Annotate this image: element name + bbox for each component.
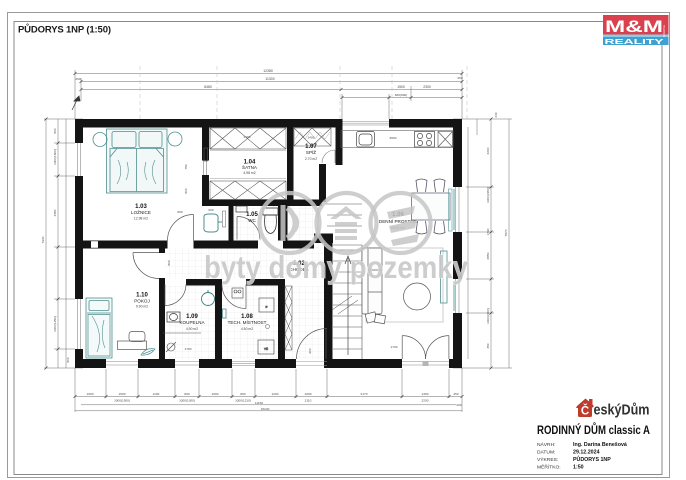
svg-text:450: 450: [486, 343, 490, 348]
svg-text:POKOJ: POKOJ: [134, 299, 150, 304]
svg-text:1:50: 1:50: [573, 465, 584, 471]
svg-text:11300: 11300: [265, 77, 274, 81]
svg-text:2200: 2200: [486, 147, 490, 154]
svg-text:1200: 1200: [272, 392, 279, 396]
svg-text:290: 290: [75, 77, 80, 81]
svg-text:4.50 m2: 4.50 m2: [241, 327, 253, 331]
svg-text:500: 500: [53, 128, 57, 133]
svg-text:byty domy pozemky: byty domy pozemky: [204, 249, 468, 285]
svg-text:3600: 3600: [390, 136, 397, 140]
svg-text:1500: 1500: [119, 392, 126, 396]
svg-text:DATUM:: DATUM:: [537, 450, 555, 456]
svg-text:29.12.2024: 29.12.2024: [573, 450, 600, 456]
svg-text:15240: 15240: [261, 407, 270, 411]
svg-text:8480: 8480: [204, 85, 212, 89]
svg-text:1500: 1500: [397, 85, 405, 89]
svg-text:4380: 4380: [53, 209, 57, 216]
svg-text:2400: 2400: [244, 135, 251, 139]
svg-text:Ing. Darina Benešová: Ing. Darina Benešová: [573, 442, 627, 448]
svg-text:ŠATNA: ŠATNA: [242, 164, 258, 170]
svg-text:2200: 2200: [422, 399, 429, 403]
svg-text:PŮDORYS 1NP (1:50): PŮDORYS 1NP (1:50): [18, 24, 111, 36]
svg-text:4.98 m2: 4.98 m2: [243, 171, 255, 175]
svg-text:7870: 7870: [504, 229, 508, 236]
svg-text:1700: 1700: [185, 347, 192, 351]
svg-text:HOLDING: HOLDING: [662, 25, 666, 37]
svg-text:1300: 1300: [422, 392, 429, 396]
svg-text:4.90 m2: 4.90 m2: [186, 327, 198, 331]
svg-text:1000(1250): 1000(1250): [53, 316, 57, 332]
svg-text:800: 800: [184, 188, 188, 193]
svg-text:1700: 1700: [391, 345, 398, 349]
svg-text:1190: 1190: [153, 392, 160, 396]
svg-text:eskýDům: eskýDům: [594, 403, 650, 419]
svg-text:P: P: [265, 305, 267, 309]
svg-text:260: 260: [457, 76, 462, 80]
svg-text:1000: 1000: [305, 392, 312, 396]
svg-text:NÁVRH:: NÁVRH:: [537, 441, 555, 448]
svg-text:1790: 1790: [486, 228, 490, 235]
svg-text:1000: 1000: [87, 392, 94, 396]
svg-text:750: 750: [184, 164, 188, 169]
svg-text:1000(1500): 1000(1500): [114, 399, 130, 403]
svg-text:11150: 11150: [255, 401, 263, 405]
svg-text:SPÍŽ: SPÍŽ: [306, 148, 316, 155]
svg-text:800: 800: [167, 260, 171, 265]
svg-text:1000: 1000: [212, 392, 219, 396]
svg-text:1000(2200): 1000(2200): [486, 187, 490, 203]
svg-text:VÝKRES:: VÝKRES:: [537, 456, 558, 463]
svg-text:1000(1300): 1000(1300): [179, 399, 195, 403]
svg-text:800: 800: [240, 392, 245, 396]
svg-text:450: 450: [453, 392, 458, 396]
svg-text:2170: 2170: [361, 392, 368, 396]
svg-text:1400(2200): 1400(2200): [486, 308, 490, 324]
svg-text:800: 800: [177, 210, 182, 214]
svg-text:Č: Č: [581, 405, 589, 418]
svg-text:2300: 2300: [423, 85, 431, 89]
svg-text:7930: 7930: [41, 236, 45, 243]
svg-text:9.90 m2: 9.90 m2: [136, 305, 148, 309]
svg-text:800: 800: [184, 392, 189, 396]
svg-text:1300(1500): 1300(1500): [53, 149, 57, 165]
svg-text:1400: 1400: [308, 136, 315, 140]
svg-text:LOŽNICE: LOŽNICE: [131, 208, 151, 215]
svg-text:500: 500: [66, 357, 70, 362]
svg-text:2.70 m2: 2.70 m2: [305, 157, 317, 161]
svg-text:WC: WC: [248, 218, 256, 223]
svg-text:600(600): 600(600): [395, 93, 407, 97]
svg-text:12.98 m2: 12.98 m2: [134, 217, 148, 221]
svg-text:1000(1210): 1000(1210): [235, 399, 251, 403]
svg-text:12380: 12380: [263, 69, 273, 73]
svg-text:PŮDORYS 1NP: PŮDORYS 1NP: [573, 455, 611, 463]
svg-text:REALITY: REALITY: [605, 37, 664, 46]
svg-text:TECH. MÍSTNOST: TECH. MÍSTNOST: [228, 319, 267, 325]
svg-text:RODINNÝ DŮM classic A: RODINNÝ DŮM classic A: [537, 423, 650, 437]
svg-text:KOUPELNA: KOUPELNA: [179, 320, 205, 325]
svg-text:900: 900: [308, 348, 312, 353]
svg-text:2850: 2850: [486, 252, 490, 259]
svg-text:260: 260: [456, 403, 461, 407]
svg-text:2110: 2110: [305, 399, 312, 403]
svg-text:600: 600: [208, 208, 213, 212]
svg-text:M&M: M&M: [605, 17, 663, 36]
svg-text:240: 240: [494, 112, 498, 117]
